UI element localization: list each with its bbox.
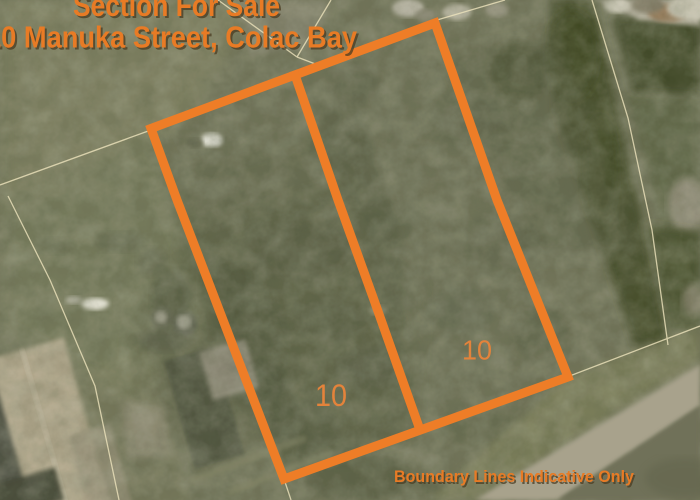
svg-text:Boundary Lines Indicative Only: Boundary Lines Indicative Only bbox=[394, 467, 635, 486]
svg-text:10 Manuka Street, Colac Bay: 10 Manuka Street, Colac Bay bbox=[0, 20, 358, 55]
svg-text:10: 10 bbox=[315, 377, 347, 413]
svg-text:10: 10 bbox=[462, 335, 492, 366]
